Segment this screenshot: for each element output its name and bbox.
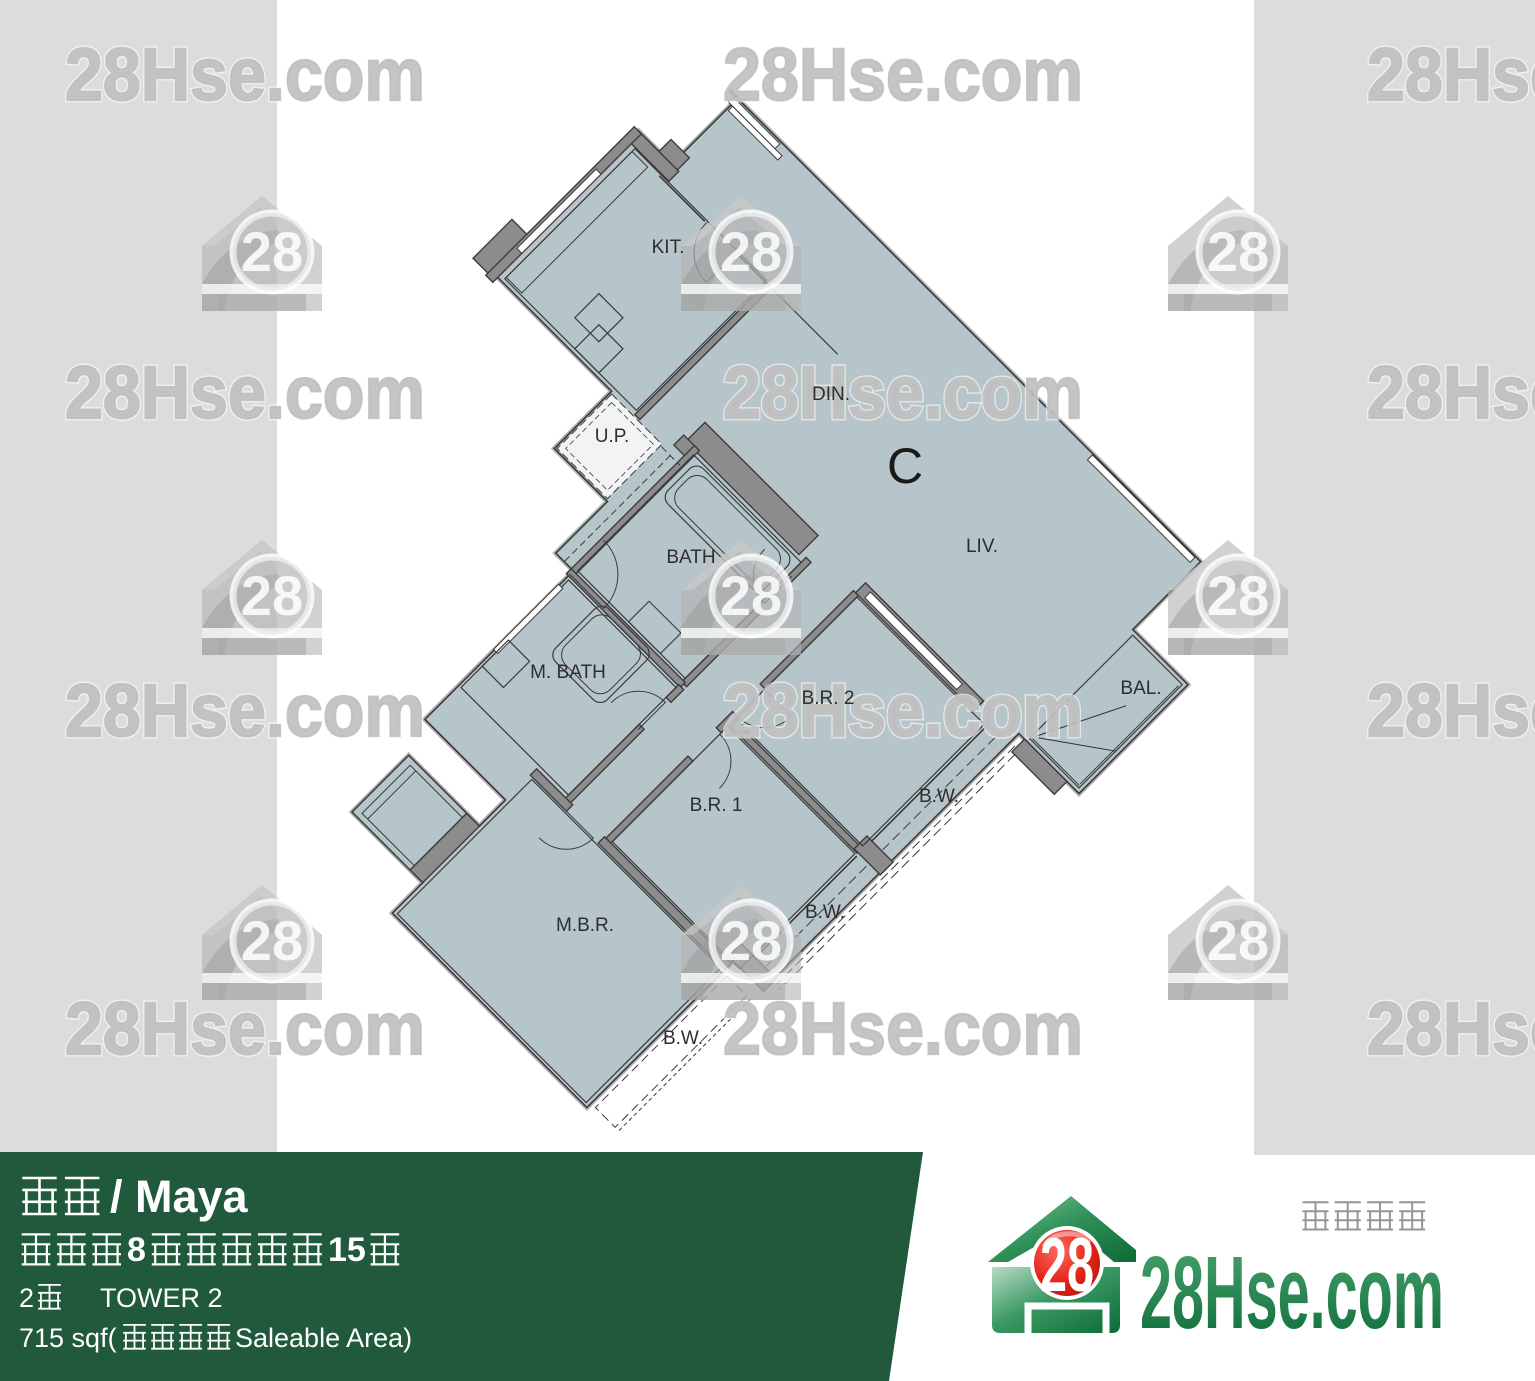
svg-text:28: 28 bbox=[1207, 564, 1269, 627]
svg-text:C: C bbox=[887, 438, 923, 494]
svg-text:8: 8 bbox=[127, 1231, 146, 1269]
svg-text:BATH: BATH bbox=[666, 547, 715, 568]
svg-text:28Hse.com: 28Hse.com bbox=[723, 351, 1083, 434]
svg-text:Saleable Area): Saleable Area) bbox=[235, 1323, 412, 1353]
svg-text:/ Maya: / Maya bbox=[110, 1171, 249, 1222]
svg-text:28Hse.com: 28Hse.com bbox=[1367, 987, 1535, 1070]
svg-text:28: 28 bbox=[720, 909, 782, 972]
svg-text:28Hse.com: 28Hse.com bbox=[65, 351, 425, 434]
svg-text:LIV.: LIV. bbox=[966, 536, 998, 557]
svg-text:TOWER 2: TOWER 2 bbox=[100, 1283, 223, 1313]
svg-text:28: 28 bbox=[1040, 1223, 1094, 1308]
svg-text:28: 28 bbox=[1207, 909, 1269, 972]
svg-text:M. BATH: M. BATH bbox=[530, 662, 606, 683]
svg-text:28Hse.com: 28Hse.com bbox=[1367, 669, 1535, 752]
svg-text:28Hse.com: 28Hse.com bbox=[1367, 33, 1535, 116]
svg-text:28: 28 bbox=[241, 220, 303, 283]
svg-text:2: 2 bbox=[19, 1283, 34, 1313]
svg-text:B.R. 2: B.R. 2 bbox=[802, 688, 855, 709]
svg-text:B.W.: B.W. bbox=[919, 786, 959, 807]
svg-text:28: 28 bbox=[241, 564, 303, 627]
svg-text:28Hse.com: 28Hse.com bbox=[723, 669, 1083, 752]
svg-text:U.P.: U.P. bbox=[595, 426, 630, 447]
svg-text:B.W.: B.W. bbox=[805, 902, 845, 923]
svg-text:28: 28 bbox=[1207, 220, 1269, 283]
svg-text:M.B.R.: M.B.R. bbox=[556, 915, 614, 936]
svg-text:28: 28 bbox=[720, 564, 782, 627]
svg-text:28Hse.com: 28Hse.com bbox=[65, 669, 425, 752]
svg-text:28: 28 bbox=[720, 220, 782, 283]
svg-text:28Hse.com: 28Hse.com bbox=[65, 33, 425, 116]
svg-text:15: 15 bbox=[328, 1231, 366, 1269]
svg-text:DIN.: DIN. bbox=[812, 384, 850, 405]
svg-text:BAL.: BAL. bbox=[1120, 678, 1161, 699]
svg-text:28Hse.com: 28Hse.com bbox=[1140, 1235, 1444, 1350]
svg-text:715 sqf(: 715 sqf( bbox=[19, 1323, 117, 1353]
svg-text:B.R. 1: B.R. 1 bbox=[690, 795, 743, 816]
svg-text:28Hse.com: 28Hse.com bbox=[1367, 351, 1535, 434]
svg-text:B.W.: B.W. bbox=[663, 1028, 703, 1049]
svg-text:KIT.: KIT. bbox=[652, 237, 685, 258]
svg-text:28: 28 bbox=[241, 909, 303, 972]
svg-text:28Hse.com: 28Hse.com bbox=[723, 33, 1083, 116]
